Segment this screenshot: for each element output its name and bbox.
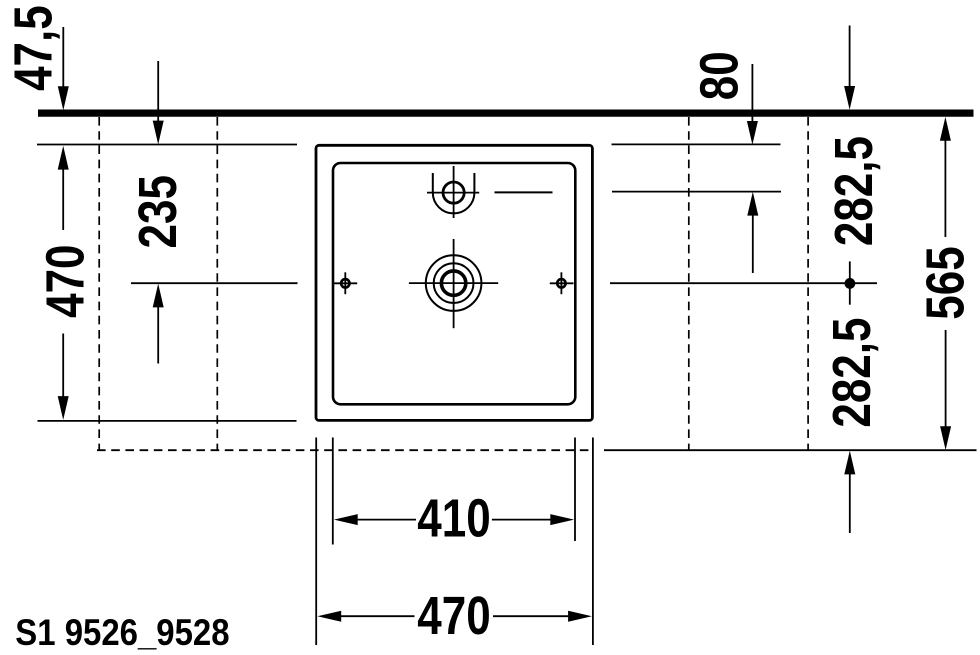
svg-text:282,5: 282,5 xyxy=(824,136,884,246)
svg-text:565: 565 xyxy=(915,246,975,319)
svg-text:S1 9526_9528: S1 9526_9528 xyxy=(15,612,229,653)
svg-text:470: 470 xyxy=(417,586,490,646)
svg-text:282,5: 282,5 xyxy=(822,318,882,428)
svg-text:47,5: 47,5 xyxy=(3,5,63,91)
svg-text:410: 410 xyxy=(417,488,490,548)
svg-text:235: 235 xyxy=(128,175,188,248)
svg-text:80: 80 xyxy=(689,51,749,100)
svg-text:470: 470 xyxy=(35,244,95,317)
